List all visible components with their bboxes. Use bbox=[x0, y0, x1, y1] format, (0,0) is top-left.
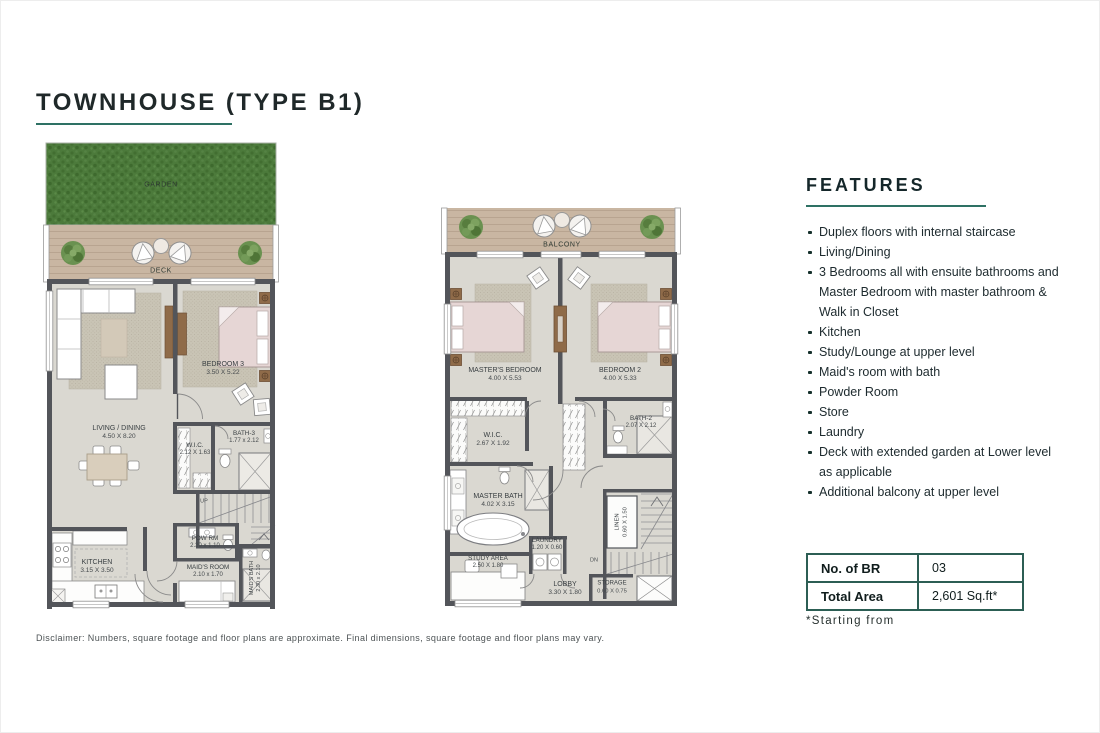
room-label-bedroom3: BEDROOM 3 3.50 X 5.22 bbox=[202, 360, 244, 378]
feature-item: Maid's room with bath bbox=[806, 362, 1064, 382]
feature-item: 3 Bedrooms all with ensuite bathrooms an… bbox=[806, 262, 1064, 322]
table-row: Total Area 2,601 Sq.ft* bbox=[807, 582, 1023, 610]
starting-from-note: *Starting from bbox=[806, 615, 895, 627]
maid-bed-icon bbox=[179, 581, 235, 602]
upper-level-floor-plan: BALCONY MASTER'S BEDROOM 4.00 X 5.53 BED… bbox=[441, 204, 681, 614]
spec-label-total-area: Total Area bbox=[807, 582, 918, 610]
room-label-bath3: BATH-3 1.77 x 2.12 bbox=[229, 430, 259, 446]
deck-table-icon bbox=[154, 239, 169, 254]
plant-icon bbox=[640, 215, 664, 239]
nightstand-icon bbox=[661, 289, 672, 300]
room-label-maids-room: MAID'S ROOM 2.10 x 1.70 bbox=[187, 564, 229, 580]
room-label-study-area: STUDY AREA 2.50 X 1.80 bbox=[468, 555, 508, 571]
feature-item: Powder Room bbox=[806, 382, 1064, 402]
toilet-icon bbox=[219, 449, 231, 468]
title-underline bbox=[36, 123, 232, 125]
laundry-fixtures bbox=[533, 554, 561, 570]
bed-icon bbox=[598, 302, 672, 352]
deck-label: DECK bbox=[150, 266, 172, 275]
room-label-wic: W.I.C. 2.12 X 1.63 bbox=[180, 442, 211, 458]
room-label-storage: STORAGE 0.60 X 0.75 bbox=[597, 580, 627, 595]
coffee-table-icon bbox=[105, 365, 137, 399]
bed-icon bbox=[219, 307, 271, 367]
feature-item: Duplex floors with internal staircase bbox=[806, 222, 1064, 242]
elevator-shaft-icon bbox=[637, 576, 672, 601]
nightstand-icon bbox=[451, 289, 462, 300]
spec-table: No. of BR 03 Total Area 2,601 Sq.ft* bbox=[806, 553, 1024, 611]
bathtub-icon bbox=[457, 513, 529, 545]
plant-icon bbox=[459, 215, 483, 239]
spec-label-bedrooms: No. of BR bbox=[807, 554, 918, 582]
feature-item: Kitchen bbox=[806, 322, 1064, 342]
tv-console-icon bbox=[165, 306, 173, 358]
sink-icon bbox=[95, 585, 117, 598]
room-label-masters-bedroom: MASTER'S BEDROOM 4.00 X 5.53 bbox=[468, 366, 541, 384]
page-title: TOWNHOUSE (TYPE B1) bbox=[36, 89, 364, 117]
shower-icon bbox=[525, 470, 549, 510]
feature-item: Laundry bbox=[806, 422, 1064, 442]
nightstand-icon bbox=[260, 293, 271, 304]
features-heading: FEATURES bbox=[806, 175, 1064, 196]
room-label-bath2: BATH-2 2.07 X 2.12 bbox=[626, 415, 657, 431]
nightstand-icon bbox=[661, 355, 672, 366]
shower-icon bbox=[239, 453, 271, 490]
room-label-living-dining: LIVING / DINING 4.50 X 8.20 bbox=[92, 424, 145, 442]
room-label-kitchen: KITCHEN 3.15 X 3.50 bbox=[80, 558, 113, 576]
corner-cabinet-icon bbox=[51, 589, 65, 603]
lower-level-floor-plan: GARDEN DECK LIVING / DINING 4.50 X 8.20 … bbox=[43, 141, 279, 613]
nightstand-icon bbox=[451, 355, 462, 366]
features-list: Duplex floors with internal staircase Li… bbox=[806, 222, 1064, 502]
feature-item: Living/Dining bbox=[806, 242, 1064, 262]
room-label-lobby: LOBBY 3.30 X 1.80 bbox=[548, 580, 581, 598]
room-label-bedroom2: BEDROOM 2 4.00 X 5.33 bbox=[599, 366, 641, 384]
room-label-linen: LINEN 0.60 X 1.50 bbox=[614, 507, 629, 537]
stove-icon bbox=[53, 543, 71, 567]
stairs-up-label: UP bbox=[200, 498, 208, 505]
toilet-icon bbox=[262, 550, 270, 560]
bedroom-doors bbox=[554, 306, 567, 352]
bath-mat-icon bbox=[607, 446, 627, 454]
floor-plan-brochure-page: TOWNHOUSE (TYPE B1) bbox=[0, 0, 1100, 733]
toilet-icon bbox=[499, 467, 510, 484]
deck-table-icon bbox=[555, 213, 570, 228]
feature-item: Deck with extended garden at Lower level… bbox=[806, 442, 1064, 482]
features-underline bbox=[806, 205, 986, 207]
garden-label: GARDEN bbox=[144, 180, 178, 189]
table-row: No. of BR 03 bbox=[807, 554, 1023, 582]
bed-icon bbox=[450, 302, 524, 352]
room-label-laundry: LAUNDRY 1.20 X 0.60 bbox=[532, 537, 563, 553]
spec-value-bedrooms: 03 bbox=[918, 554, 1023, 582]
plant-icon bbox=[61, 241, 85, 265]
feature-item: Study/Lounge at upper level bbox=[806, 342, 1064, 362]
stairs-down-label: DN bbox=[590, 557, 598, 564]
spec-value-total-area: 2,601 Sq.ft* bbox=[918, 582, 1023, 610]
sink-icon bbox=[663, 402, 672, 417]
sink-icon bbox=[243, 549, 257, 557]
room-label-powder-room: POW RM 2.30 x 1.10 bbox=[190, 535, 220, 551]
feature-item: Additional balcony at upper level bbox=[806, 482, 1064, 502]
nightstand-icon bbox=[260, 371, 271, 382]
disclaimer-text: Disclaimer: Numbers, square footage and … bbox=[36, 633, 604, 643]
balcony-label: BALCONY bbox=[543, 240, 581, 249]
wardrobe-icon bbox=[178, 313, 187, 355]
plant-icon bbox=[238, 241, 262, 265]
feature-item: Store bbox=[806, 402, 1064, 422]
features-section: FEATURES Duplex floors with internal sta… bbox=[806, 175, 1064, 502]
room-label-wic: W.I.C. 2.67 X 1.92 bbox=[476, 431, 509, 449]
room-label-master-bath: MASTER BATH 4.02 X 3.15 bbox=[473, 492, 522, 510]
room-label-maids-bath: MAID'S BATH 2.30 x 2.10 bbox=[249, 561, 263, 595]
